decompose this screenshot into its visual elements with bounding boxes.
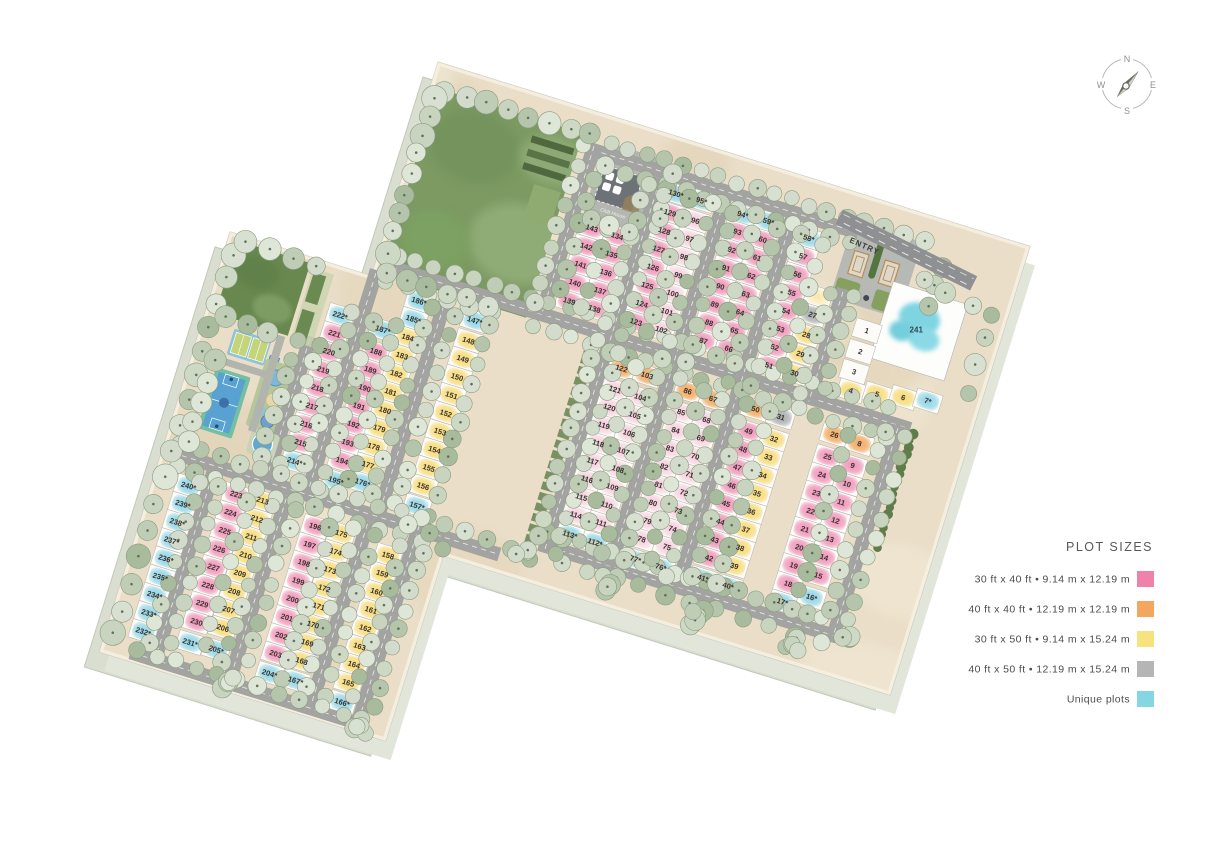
svg-text:PLOT SIZES: PLOT SIZES [1066,540,1153,554]
svg-text:Unique plots: Unique plots [1067,694,1130,706]
svg-text:241: 241 [910,325,924,334]
svg-text:40 ft x 50 ft • 12.19 m x 15.2: 40 ft x 50 ft • 12.19 m x 15.24 m [968,664,1130,676]
svg-text:30 ft x 40 ft • 9.14 m x 12.19: 30 ft x 40 ft • 9.14 m x 12.19 m [975,574,1130,586]
svg-text:W: W [1097,80,1106,90]
svg-text:E: E [1150,80,1156,90]
svg-text:N: N [1124,54,1131,64]
svg-text:S: S [1124,106,1130,116]
svg-text:30 ft x 50 ft • 9.14 m x 15.24: 30 ft x 50 ft • 9.14 m x 15.24 m [975,634,1130,646]
svg-text:40 ft x 40 ft • 12.19 m x 12.1: 40 ft x 40 ft • 12.19 m x 12.19 m [968,604,1130,616]
